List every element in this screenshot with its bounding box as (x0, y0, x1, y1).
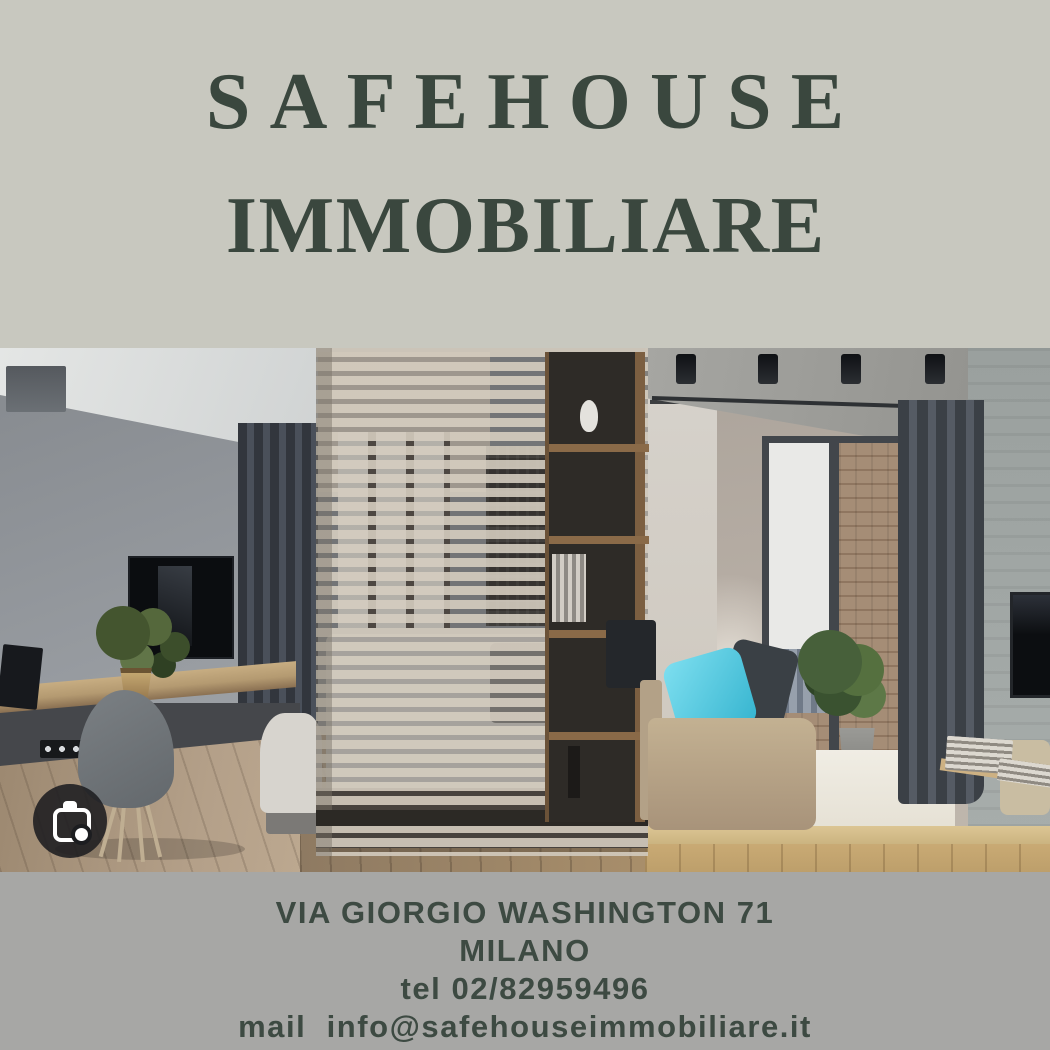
shelf-bottle (568, 746, 580, 798)
shelf-vase (580, 400, 598, 432)
agency-name-line1: SAFEHOUSE (0, 62, 1050, 142)
sofa-mattress (648, 718, 816, 830)
agency-name-line2: IMMOBILIARE (0, 186, 1050, 266)
email-line: mail info@safehouseimmobiliare.it (0, 1008, 1050, 1046)
ceiling-spotlight (676, 354, 696, 384)
wood-floor-right (645, 844, 1050, 872)
ceiling-spotlight (841, 354, 861, 384)
apartment-photo (0, 348, 1050, 872)
wall-device (606, 620, 656, 688)
desk-plant (92, 606, 192, 698)
real-estate-flyer: SAFEHOUSE IMMOBILIARE (0, 0, 1050, 1050)
google-lens-button[interactable] (33, 784, 107, 858)
air-conditioner (6, 366, 66, 412)
contact-footer: VIA GIORGIO WASHINGTON 71 MILANO tel 02/… (0, 872, 1050, 1050)
bed-pillow-left (260, 713, 322, 813)
shelf-books (552, 554, 586, 622)
google-lens-camera-dot (75, 828, 88, 841)
laptop (0, 644, 43, 710)
ceiling-spotlight (925, 354, 945, 384)
city-line: MILANO (0, 932, 1050, 970)
balcony-plant (798, 630, 862, 694)
phone-line: tel 02/82959496 (0, 970, 1050, 1008)
shelf-board (549, 444, 649, 452)
right-tv (1010, 592, 1050, 698)
shelf-board (549, 536, 649, 544)
flyer-header: SAFEHOUSE IMMOBILIARE (0, 0, 1050, 348)
plant-leaves (96, 606, 150, 660)
slat-divider-post (316, 348, 332, 856)
shelf-board (549, 732, 649, 740)
ceiling-spotlight (758, 354, 778, 384)
address-line: VIA GIORGIO WASHINGTON 71 (0, 894, 1050, 932)
